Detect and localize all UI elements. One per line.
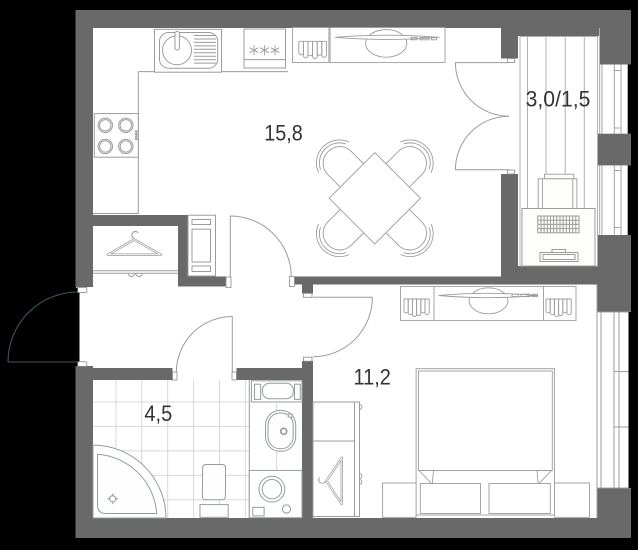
- svg-text:4,5: 4,5: [144, 401, 172, 426]
- svg-text:3,0/1,5: 3,0/1,5: [526, 86, 591, 112]
- svg-text:15,8: 15,8: [264, 121, 303, 145]
- svg-text:11,2: 11,2: [353, 365, 390, 390]
